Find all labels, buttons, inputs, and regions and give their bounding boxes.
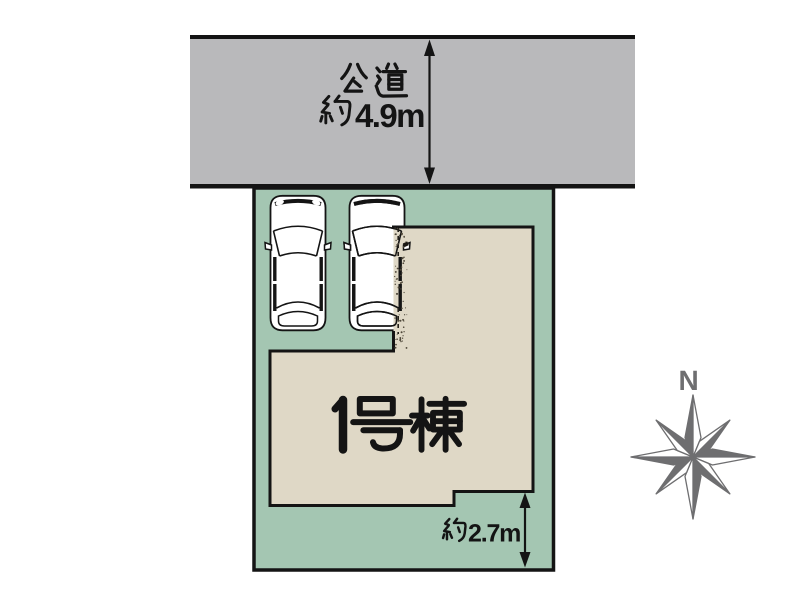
svg-text:4.9m: 4.9m — [355, 97, 424, 134]
svg-text:2.7m: 2.7m — [468, 520, 520, 548]
svg-text:N: N — [679, 365, 699, 396]
